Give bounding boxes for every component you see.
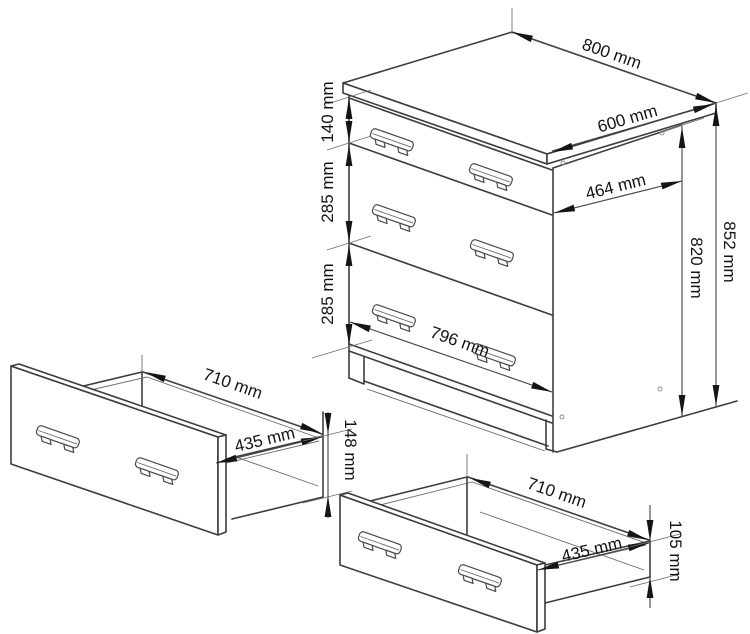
dim-label-right-drawer-width: 710 mm	[525, 474, 589, 512]
plinth-bottom-edge	[367, 389, 545, 451]
diagram-canvas: 800 mm 600 mm 464 mm 852 mm 820 mm	[0, 0, 750, 634]
front-panel-right-edge	[537, 563, 545, 632]
drawer2-handle-left	[370, 204, 416, 232]
dim-label-body-height: 820 mm	[687, 237, 706, 298]
dim-label-left-drawer-width: 710 mm	[201, 365, 265, 403]
drawer2-handle-right	[468, 239, 514, 267]
dim-label-front-width: 796 mm	[428, 323, 492, 361]
box-bottom-right-edge	[232, 497, 323, 519]
box-bottom-right-edge	[545, 577, 650, 603]
plinth-top-edge	[364, 381, 548, 446]
dim-label-drawer1-height: 140 mm	[318, 81, 337, 142]
dowel-hole	[560, 415, 564, 419]
box-left-top-edge	[362, 477, 467, 503]
dim-label-body-depth: 464 mm	[584, 170, 648, 203]
dim-label-drawer2-height: 285 mm	[318, 161, 337, 222]
left-leg	[349, 357, 364, 384]
drawer2-3-separation	[349, 243, 552, 315]
dim-label-left-drawer-height: 148 mm	[341, 419, 360, 480]
right-leg	[546, 420, 557, 452]
front-panel-right-edge	[218, 435, 226, 535]
front-panel	[340, 495, 537, 632]
dim-label-right-drawer-depth: 435 mm	[560, 533, 624, 566]
dim-label-drawer3-height: 285 mm	[318, 263, 337, 324]
dim-label-total-height: 852 mm	[720, 221, 739, 282]
dim-label-right-drawer-height: 105 mm	[666, 520, 685, 581]
dowel-hole	[658, 387, 662, 391]
drawer3-bottom-edge	[349, 344, 552, 416]
furniture-dimension-diagram: 800 mm 600 mm 464 mm 852 mm 820 mm	[0, 0, 750, 634]
drawer3-handle-left	[370, 304, 416, 332]
right-drawer-drawing: 710 mm 435 mm 105 mm	[340, 454, 685, 632]
left-drawer-drawing: 710 mm 435 mm 148 mm	[11, 355, 360, 535]
cabinet-top-face	[343, 32, 716, 154]
side-bottom-edge	[557, 401, 737, 452]
